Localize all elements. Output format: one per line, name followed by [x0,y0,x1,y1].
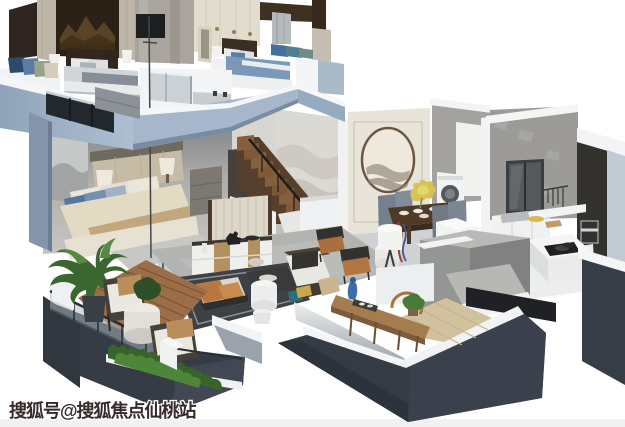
svg-text:搜狐号@搜狐焦点仙桃站: 搜狐号@搜狐焦点仙桃站 [9,400,197,421]
